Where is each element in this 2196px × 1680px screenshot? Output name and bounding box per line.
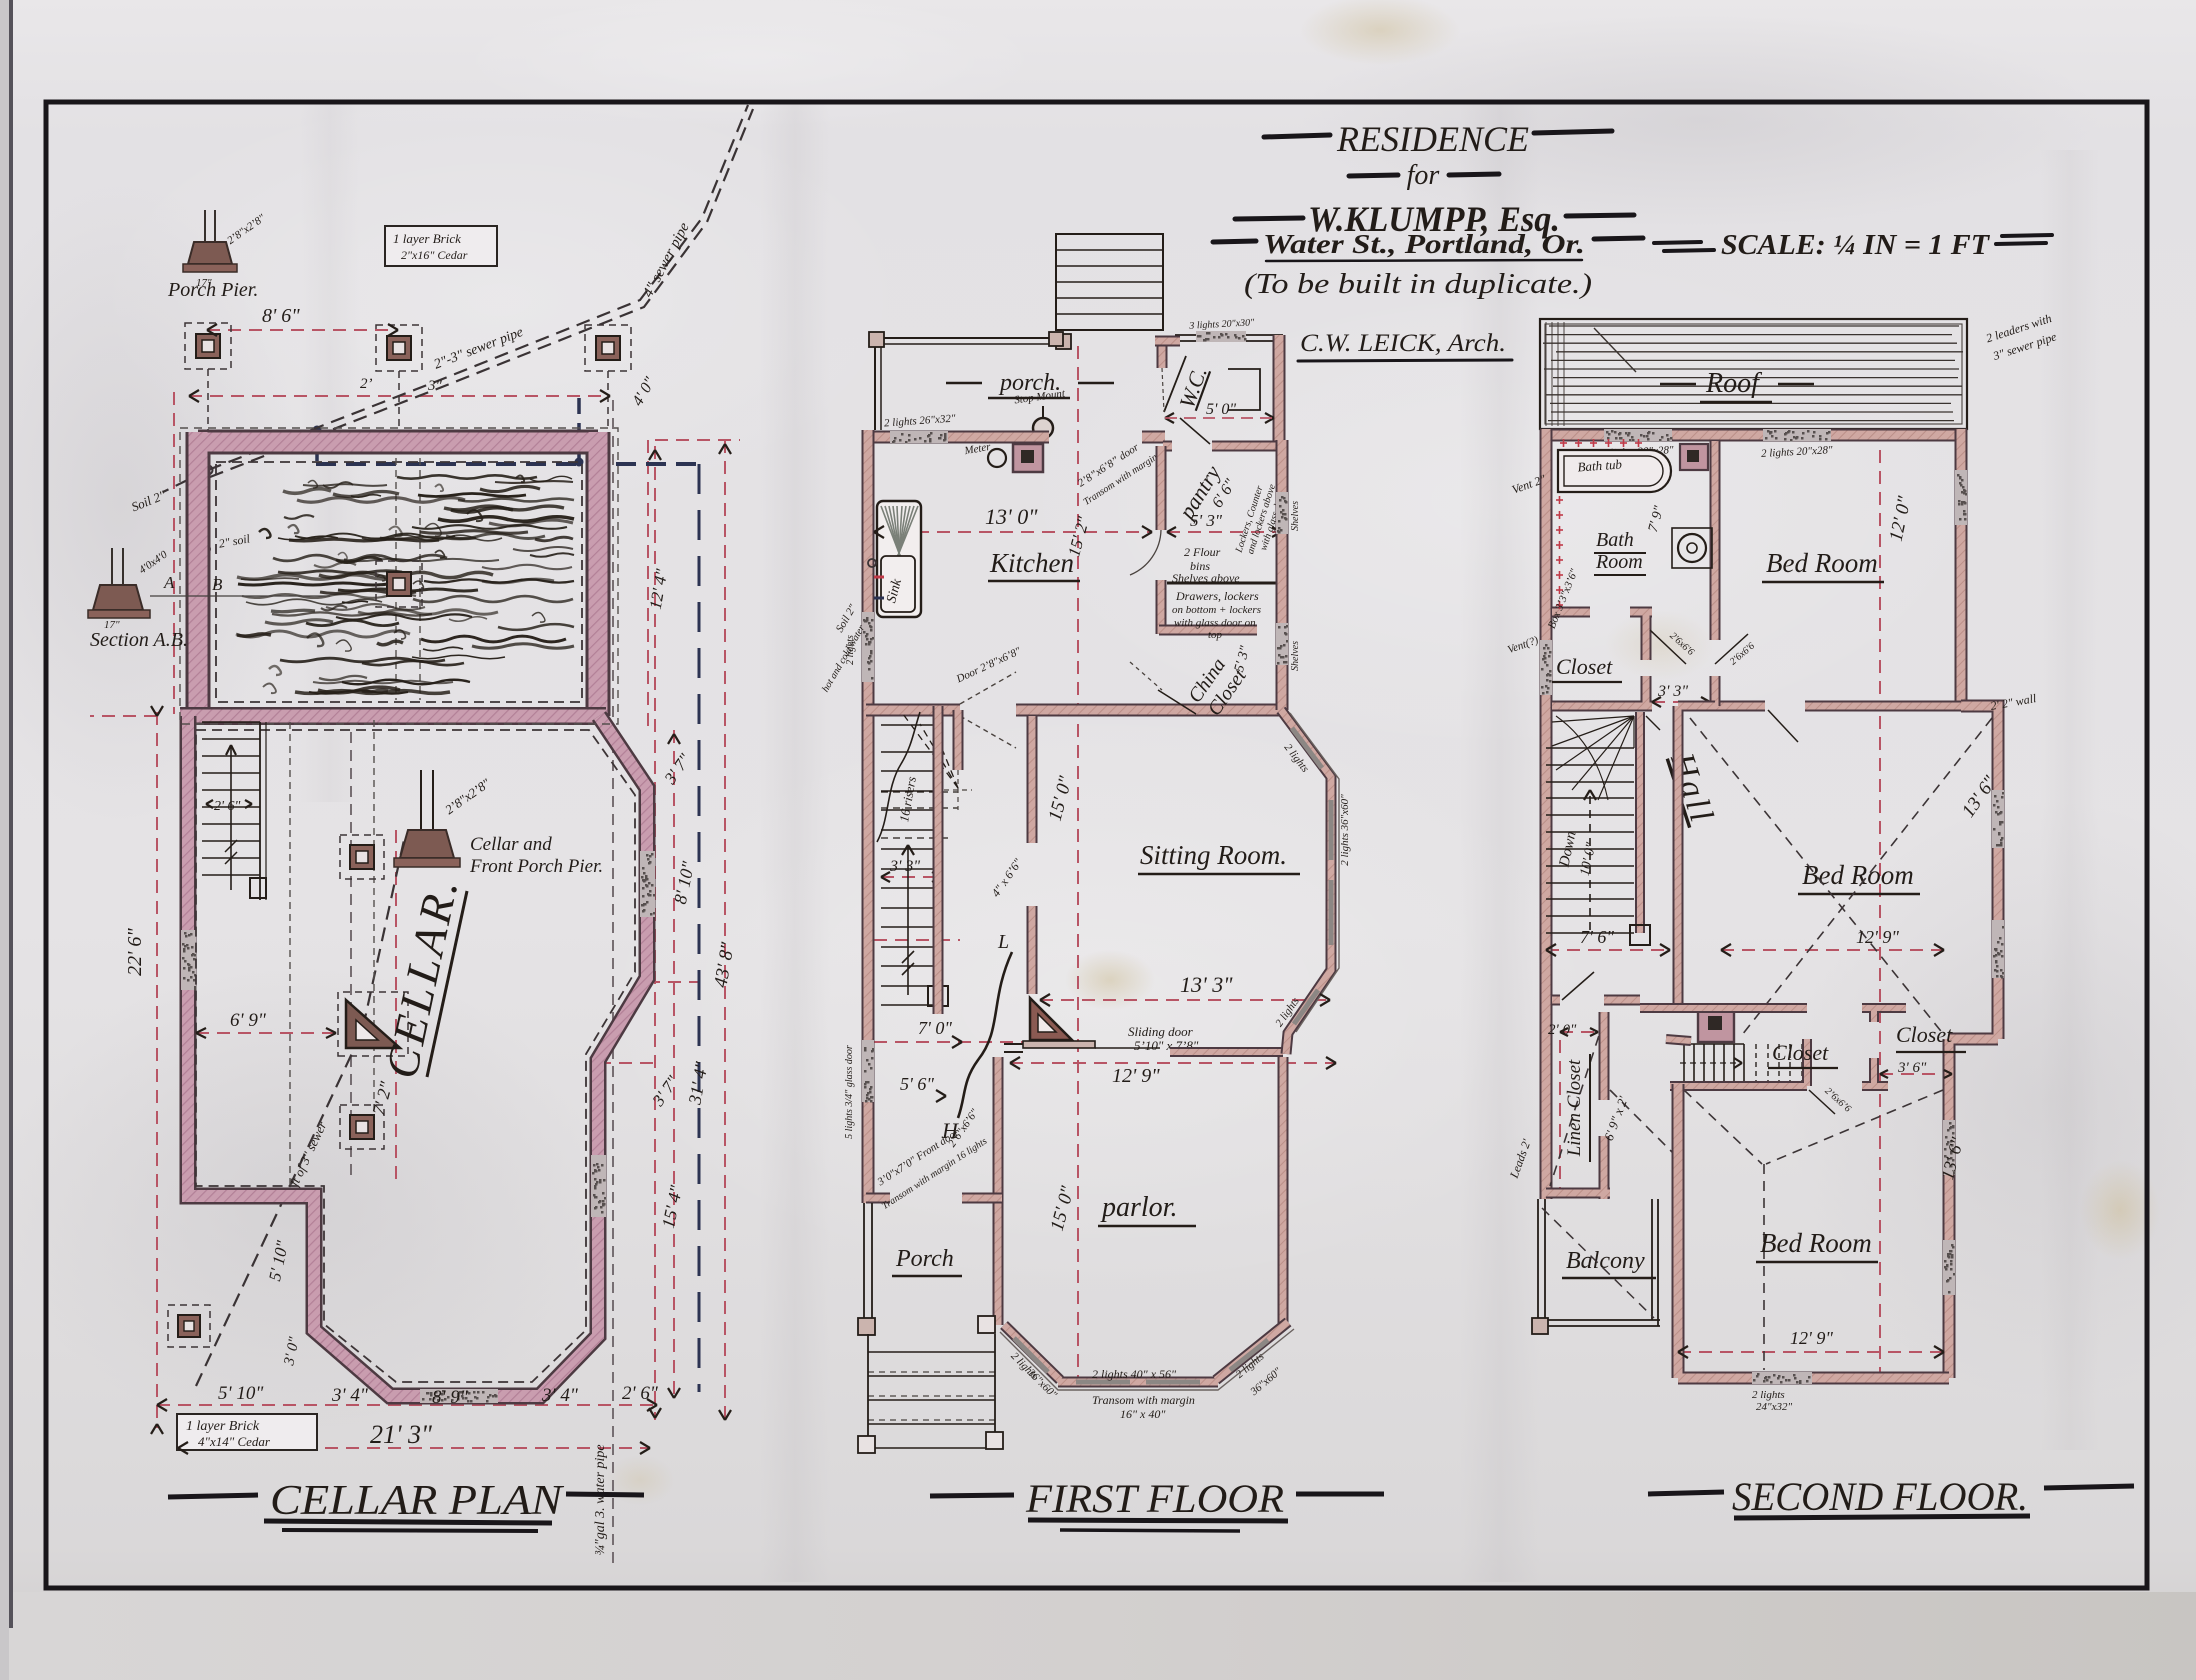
svg-text:1 layer Brick: 1 layer Brick [186, 1419, 260, 1434]
svg-text:on bottom + lockers: on bottom + lockers [1172, 604, 1261, 616]
svg-text:¾"gal 3. water pipe: ¾"gal 3. water pipe [593, 1444, 608, 1555]
svg-text:5' 0": 5' 0" [1206, 401, 1236, 418]
svg-text:3' 3": 3' 3" [889, 858, 920, 875]
svg-text:5' 10": 5' 10" [218, 1383, 264, 1404]
svg-text:FIRST FLOOR: FIRST FLOOR [1025, 1476, 1284, 1521]
svg-text:3' 4": 3' 4" [541, 1385, 579, 1406]
svg-text:Water St., Portland, Or.: Water St., Portland, Or. [1263, 229, 1585, 259]
svg-text:2' 6": 2' 6" [214, 799, 240, 814]
svg-text:SCALE: ¼ IN = 1 FT: SCALE: ¼ IN = 1 FT [1721, 230, 1991, 261]
svg-text:B: B [212, 575, 223, 594]
svg-text:2 lights: 2 lights [1752, 1389, 1785, 1401]
svg-text:Shelves above: Shelves above [1172, 571, 1240, 585]
svg-text:L: L [997, 931, 1009, 953]
svg-text:13' 0": 13' 0" [985, 504, 1038, 529]
svg-text:Cellar and: Cellar and [470, 834, 552, 855]
svg-text:5' 3": 5' 3" [1190, 511, 1223, 530]
svg-text:2 Flour: 2 Flour [1184, 545, 1221, 559]
svg-text:5' 6": 5' 6" [900, 1074, 934, 1094]
svg-text:top: top [1208, 629, 1223, 641]
svg-text:Bed Room: Bed Room [1760, 1228, 1872, 1258]
svg-text:C.W. LEICK, Arch.: C.W. LEICK, Arch. [1300, 330, 1506, 357]
svg-text:3' 4": 3' 4" [331, 1385, 369, 1406]
svg-text:3' 3": 3' 3" [1657, 683, 1688, 700]
svg-text:2 lights 40" x 56": 2 lights 40" x 56" [1092, 1367, 1177, 1381]
svg-text:2"x16" Cedar: 2"x16" Cedar [401, 248, 468, 262]
svg-text:(To be built in duplicate.): (To be built in duplicate.) [1244, 268, 1592, 300]
svg-text:Linen Closet: Linen Closet [1564, 1059, 1585, 1157]
svg-text:Bath tub: Bath tub [1577, 456, 1623, 474]
svg-text:7' 6": 7' 6" [1580, 927, 1614, 947]
svg-text:2 lights 36"x60": 2 lights 36"x60" [1339, 794, 1351, 866]
svg-text:4"x14" Cedar: 4"x14" Cedar [198, 1434, 271, 1449]
svg-text:Closet: Closet [1896, 1022, 1953, 1047]
svg-text:SECOND FLOOR.: SECOND FLOOR. [1732, 1474, 2028, 1519]
svg-text:8' 9": 8' 9" [432, 1387, 469, 1408]
svg-text:CELLAR PLAN: CELLAR PLAN [270, 1478, 564, 1524]
svg-text:22' 6": 22' 6" [124, 928, 146, 976]
svg-text:5 lights 3/4" glass door: 5 lights 3/4" glass door [844, 1045, 855, 1139]
svg-text:2’: 2’ [360, 376, 373, 392]
svg-text:6' 9": 6' 9" [230, 1010, 267, 1031]
svg-text:Shelves: Shelves [1290, 641, 1301, 671]
svg-text:21' 3": 21' 3" [370, 1420, 432, 1449]
svg-text:16" x 40": 16" x 40" [1120, 1407, 1166, 1421]
svg-text:Front Porch Pier.: Front Porch Pier. [469, 856, 603, 877]
svg-text:Bed Room: Bed Room [1766, 548, 1878, 578]
svg-text:with glass door on: with glass door on [1174, 617, 1256, 629]
svg-text:Sliding door: Sliding door [1128, 1024, 1194, 1039]
svg-text:RESIDENCE: RESIDENCE [1336, 119, 1529, 159]
svg-text:3": 3" [427, 378, 443, 394]
svg-text:A: A [163, 573, 175, 592]
svg-text:Closet: Closet [1772, 1040, 1829, 1065]
svg-text:12' 9": 12' 9" [1790, 1328, 1833, 1348]
svg-text:13' 3": 13' 3" [1180, 972, 1233, 997]
svg-text:7' 0": 7' 0" [918, 1018, 952, 1038]
svg-text:12' 9": 12' 9" [1856, 927, 1899, 947]
svg-text:Room: Room [1595, 551, 1643, 573]
svg-text:Roof: Roof [1705, 368, 1762, 399]
svg-text:Shelves: Shelves [1290, 501, 1301, 531]
svg-text:3' 6": 3' 6" [1897, 1060, 1927, 1076]
svg-text:Porch Pier.: Porch Pier. [167, 279, 258, 301]
svg-text:24"x32": 24"x32" [1756, 1401, 1793, 1413]
svg-text:Section A.B.: Section A.B. [90, 629, 188, 651]
svg-text:Bath: Bath [1596, 529, 1634, 551]
svg-text:Drawers, lockers: Drawers, lockers [1175, 589, 1259, 603]
svg-text:parlor.: parlor. [1100, 1192, 1177, 1223]
svg-text:Closet: Closet [1556, 654, 1613, 679]
svg-text:1 layer Brick: 1 layer Brick [393, 231, 461, 246]
svg-text:Porch: Porch [895, 1246, 954, 1272]
svg-text:for: for [1407, 160, 1440, 191]
svg-text:12' 9": 12' 9" [1112, 1065, 1160, 1087]
svg-text:Kitchen: Kitchen [989, 548, 1074, 578]
svg-text:2' 6": 2' 6" [622, 1383, 659, 1404]
svg-text:Transom with margin: Transom with margin [1092, 1393, 1195, 1407]
svg-text:8' 6": 8' 6" [262, 305, 300, 327]
svg-text:Sitting Room.: Sitting Room. [1140, 840, 1287, 870]
svg-text:Bed Room: Bed Room [1802, 860, 1914, 890]
